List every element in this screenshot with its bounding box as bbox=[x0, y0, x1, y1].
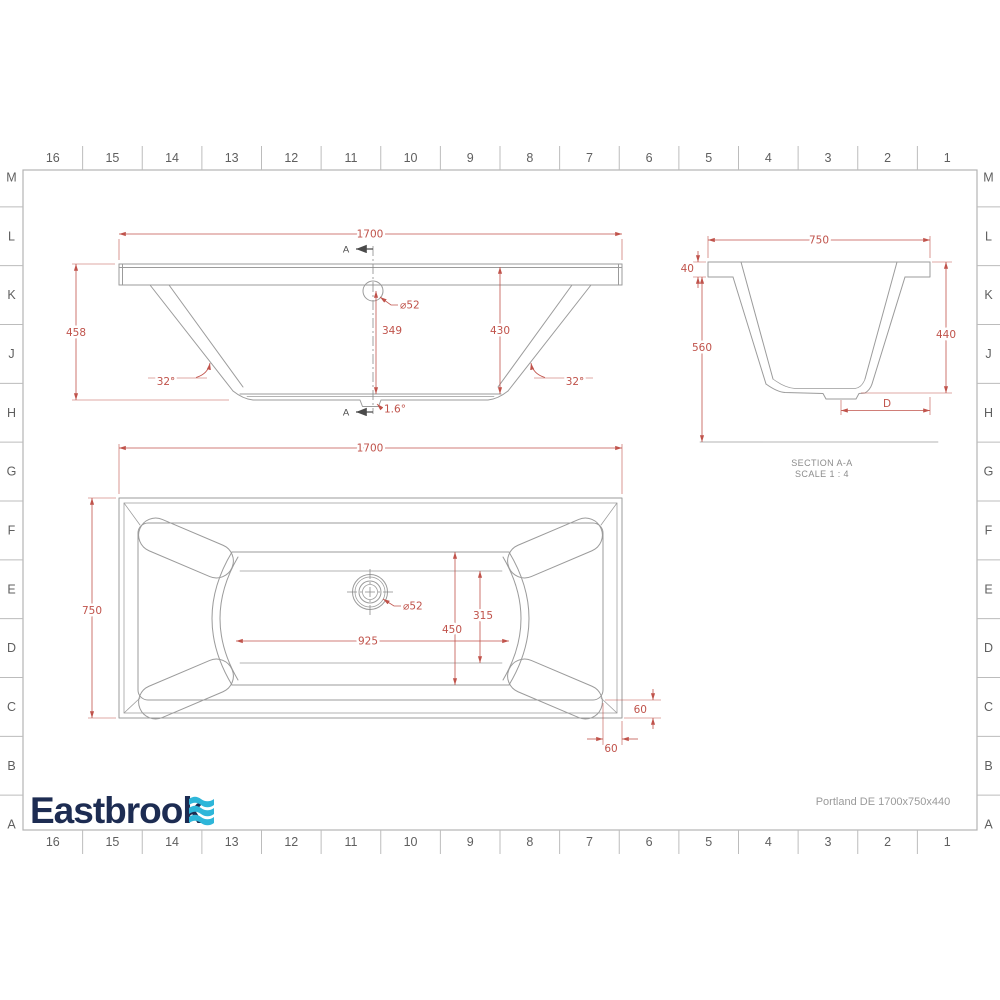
grid-row-label-left: H bbox=[7, 406, 16, 420]
product-title: Portland DE 1700x750x440 bbox=[816, 796, 951, 808]
grid-column-label-top: 6 bbox=[646, 151, 653, 165]
dim-waste-position: 315 bbox=[473, 610, 493, 622]
dim-front-height: 458 bbox=[66, 327, 86, 339]
grid-column-label-bottom: 14 bbox=[165, 835, 179, 849]
grid-row-label-right: E bbox=[984, 582, 992, 596]
grid-row-label-left: L bbox=[8, 229, 15, 243]
grid-column-label-bottom: 13 bbox=[225, 835, 239, 849]
grid-column-label-bottom: 4 bbox=[765, 835, 772, 849]
grid-column-label-top: 12 bbox=[284, 151, 298, 165]
grid-labels: 1616151514141313121211111010998877665544… bbox=[6, 151, 993, 849]
grid-column-label-top: 1 bbox=[944, 151, 951, 165]
section-scale: SCALE 1 : 4 bbox=[795, 469, 849, 479]
grid-column-label-bottom: 9 bbox=[467, 835, 474, 849]
grid-row-label-right: B bbox=[984, 759, 992, 773]
dim-plan-width: 750 bbox=[82, 605, 102, 617]
dim-overflow-dia: ⌀52 bbox=[400, 300, 420, 312]
grid-row-label-right: F bbox=[985, 523, 993, 537]
section-dimensions: 750 40 560 440 D bbox=[681, 235, 956, 443]
grid-column-label-bottom: 10 bbox=[404, 835, 418, 849]
dim-waste-dia: ⌀52 bbox=[403, 601, 423, 613]
grid-row-label-left: B bbox=[7, 759, 15, 773]
plan-tub-outline bbox=[119, 498, 622, 724]
grid-column-label-top: 10 bbox=[404, 151, 418, 165]
logo-waves-icon bbox=[189, 797, 214, 826]
grid-column-label-bottom: 8 bbox=[526, 835, 533, 849]
dim-angle-right: 32° bbox=[566, 376, 585, 388]
dim-section-height: 560 bbox=[692, 342, 712, 354]
grid-row-label-right: A bbox=[984, 818, 993, 832]
dim-inner-depth: 440 bbox=[936, 329, 956, 341]
section-tub-outline bbox=[700, 262, 938, 442]
grid-row-label-right: L bbox=[985, 229, 992, 243]
dim-front-width: 1700 bbox=[357, 229, 384, 241]
section-marker-label-top: A bbox=[343, 245, 350, 256]
grid-row-label-right: J bbox=[985, 347, 991, 361]
grid-column-label-bottom: 12 bbox=[284, 835, 298, 849]
grid-row-label-left: E bbox=[7, 582, 15, 596]
grid-column-label-bottom: 15 bbox=[105, 835, 119, 849]
grid-column-label-top: 7 bbox=[586, 151, 593, 165]
grid-row-label-left: C bbox=[7, 700, 16, 714]
dim-corner-offset-h: 60 bbox=[604, 743, 617, 755]
grid-row-label-right: K bbox=[984, 288, 993, 302]
grid-column-label-top: 3 bbox=[824, 151, 831, 165]
dim-corner-offset-v: 60 bbox=[634, 704, 647, 716]
grid-column-label-top: 15 bbox=[105, 151, 119, 165]
grid-border: 1616151514141313121211111010998877665544… bbox=[0, 146, 1000, 854]
dim-waste-offset: D bbox=[883, 398, 891, 410]
dim-front-inner-height: 430 bbox=[490, 325, 510, 337]
grid-row-label-left: J bbox=[8, 347, 14, 361]
grid-row-label-right: M bbox=[983, 170, 993, 184]
dim-overflow-height: 349 bbox=[382, 325, 402, 337]
section-title: SECTION A-A bbox=[791, 458, 852, 468]
grid-column-label-bottom: 1 bbox=[944, 835, 951, 849]
dim-floor-slope: 1.6° bbox=[384, 404, 406, 416]
grid-column-label-top: 4 bbox=[765, 151, 772, 165]
grid-column-label-top: 13 bbox=[225, 151, 239, 165]
grid-column-label-bottom: 5 bbox=[705, 835, 712, 849]
grid-column-label-top: 2 bbox=[884, 151, 891, 165]
grid-row-label-left: K bbox=[7, 288, 16, 302]
grid-column-label-bottom: 7 bbox=[586, 835, 593, 849]
grid-ticks bbox=[0, 146, 1000, 854]
front-tub-outline bbox=[119, 264, 622, 407]
grid-row-label-right: D bbox=[984, 641, 993, 655]
grid-column-label-bottom: 3 bbox=[824, 835, 831, 849]
grid-row-label-right: C bbox=[984, 700, 993, 714]
dim-floor-width: 450 bbox=[442, 624, 462, 636]
grid-column-label-bottom: 11 bbox=[344, 835, 357, 849]
logo-wordmark: Eastbrook bbox=[30, 790, 203, 831]
grid-row-label-left: F bbox=[8, 523, 16, 537]
plan-dimensions: 1700 750 925 450 315 ⌀52 60 60 bbox=[82, 443, 661, 756]
grid-column-label-top: 11 bbox=[344, 151, 357, 165]
section-view: 750 40 560 440 D SECTION A-A SCALE 1 : 4 bbox=[681, 235, 956, 480]
grid-column-label-bottom: 16 bbox=[46, 835, 60, 849]
grid-row-label-left: A bbox=[7, 818, 16, 832]
section-marker-label-bottom: A bbox=[343, 408, 350, 419]
front-elevation-view: A A 1700 458 430 349 ⌀52 32° 32° 1.6° bbox=[66, 229, 622, 419]
grid-column-label-bottom: 2 bbox=[884, 835, 891, 849]
grid-column-label-bottom: 6 bbox=[646, 835, 653, 849]
footer: Eastbrook Portland DE 1700x750x440 bbox=[30, 790, 950, 831]
front-dimensions: 1700 458 430 349 ⌀52 32° 32° 1.6° bbox=[66, 229, 622, 416]
grid-row-label-right: H bbox=[984, 406, 993, 420]
grid-row-label-left: D bbox=[7, 641, 16, 655]
dim-rim-thickness: 40 bbox=[681, 263, 694, 275]
dim-plan-length: 1700 bbox=[357, 443, 384, 455]
grid-row-label-left: M bbox=[6, 170, 16, 184]
dim-angle-left: 32° bbox=[157, 376, 176, 388]
dim-floor-length: 925 bbox=[358, 636, 378, 648]
plan-view: 1700 750 925 450 315 ⌀52 60 60 bbox=[82, 443, 661, 756]
grid-column-label-top: 8 bbox=[526, 151, 533, 165]
grid-column-label-top: 9 bbox=[467, 151, 474, 165]
grid-row-label-right: G bbox=[984, 465, 994, 479]
waste-drain bbox=[347, 569, 393, 616]
dim-section-width: 750 bbox=[809, 235, 829, 247]
front-section-markers: A A bbox=[343, 245, 373, 419]
grid-row-label-left: G bbox=[7, 465, 17, 479]
grid-column-label-top: 16 bbox=[46, 151, 60, 165]
drawing-sheet: 1616151514141313121211111010998877665544… bbox=[0, 0, 1000, 1000]
grid-column-label-top: 14 bbox=[165, 151, 179, 165]
grid-column-label-top: 5 bbox=[705, 151, 712, 165]
